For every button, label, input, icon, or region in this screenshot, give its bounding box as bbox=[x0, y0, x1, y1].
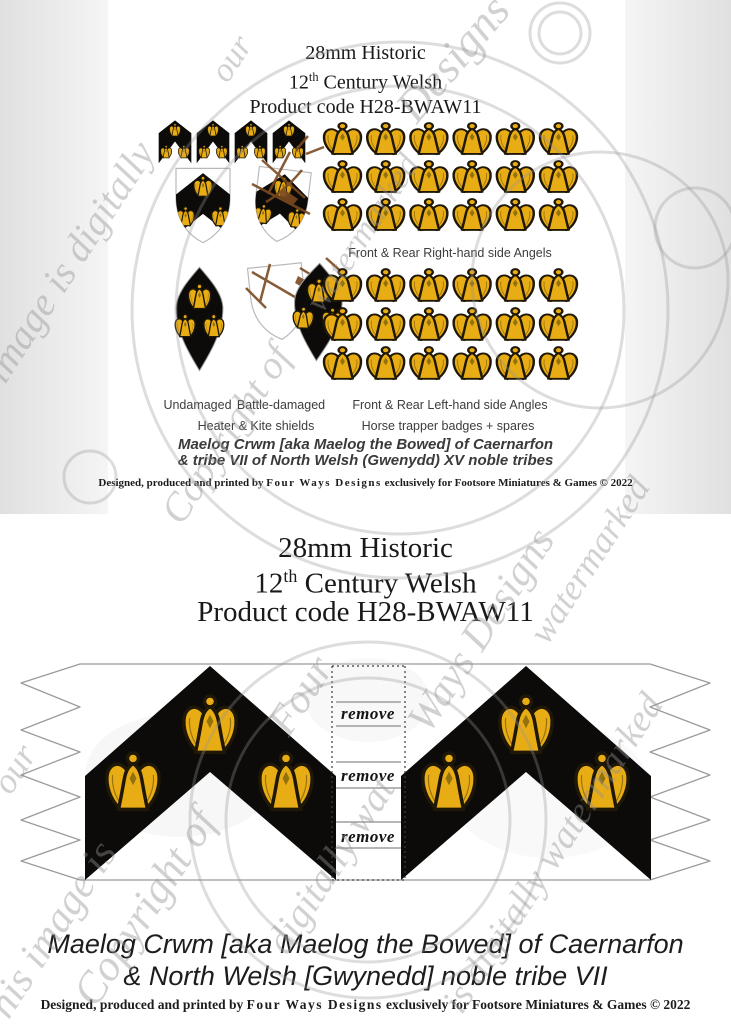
title-line-2: 12th Century Welsh bbox=[0, 65, 731, 95]
angel-icon bbox=[540, 161, 577, 192]
angel-icon bbox=[454, 308, 491, 340]
angel-icon bbox=[367, 269, 404, 301]
angel-icon bbox=[410, 199, 447, 230]
angel-icon bbox=[324, 347, 361, 379]
product-image-page: { "colors": { "gold": "#E8AC15", "outlin… bbox=[0, 0, 731, 1024]
artwork-layer: remove remove remove bbox=[0, 0, 731, 1024]
top-sheet-caption: Maelog Crwm [aka Maelog the Bowed] of Ca… bbox=[0, 437, 731, 469]
angel-icon bbox=[367, 347, 404, 379]
remove-label: remove bbox=[341, 704, 395, 723]
angel-icon bbox=[324, 161, 361, 192]
angel-icon bbox=[454, 123, 491, 154]
chevron-badge-icon bbox=[197, 120, 230, 163]
top-sheet-copyright: Designed, produced and printed by Four W… bbox=[0, 477, 731, 489]
angel-icon bbox=[540, 347, 577, 379]
label-left-angels: Front & Rear Left-hand side Angles bbox=[338, 398, 562, 412]
angel-icon bbox=[410, 161, 447, 192]
angel-icon bbox=[324, 123, 361, 154]
kite-shield-battle-damaged-icon bbox=[246, 258, 344, 362]
angel-grid-left-side bbox=[324, 269, 577, 379]
angel-icon bbox=[454, 347, 491, 379]
banner-sheet-title: 28mm Historic 12th Century Welsh Product… bbox=[0, 534, 731, 626]
angel-icon bbox=[367, 123, 404, 154]
angel-icon bbox=[410, 347, 447, 379]
chevron-badge-row bbox=[159, 120, 306, 163]
remove-label: remove bbox=[341, 766, 395, 785]
banner: remove remove remove bbox=[21, 658, 710, 880]
angel-icon bbox=[367, 199, 404, 230]
caption-line-1: Maelog Crwm [aka Maelog the Bowed] of Ca… bbox=[0, 928, 731, 960]
label-right-angels: Front & Rear Right-hand side Angels bbox=[338, 246, 562, 260]
angel-icon bbox=[540, 123, 577, 154]
angel-icon bbox=[324, 199, 361, 230]
angel-grid-right-side bbox=[324, 123, 577, 230]
angel-icon bbox=[454, 269, 491, 301]
angel-icon bbox=[540, 199, 577, 230]
top-sheet-title: 28mm Historic 12th Century Welsh Product… bbox=[0, 41, 731, 119]
chevron-badge-icon bbox=[235, 120, 268, 163]
angel-icon bbox=[410, 308, 447, 340]
caption-line-2: & tribe VII of North Welsh (Gwenydd) XV … bbox=[0, 453, 731, 469]
remove-label: remove bbox=[341, 827, 395, 846]
angel-icon bbox=[454, 199, 491, 230]
title-line-3: Product code H28-BWAW11 bbox=[0, 598, 731, 626]
chevron-badge-icon bbox=[159, 120, 192, 163]
angel-icon bbox=[497, 347, 534, 379]
angel-icon bbox=[367, 161, 404, 192]
angel-icon bbox=[540, 269, 577, 301]
title-line-1: 28mm Historic bbox=[0, 534, 731, 562]
banner-sheet-caption: Maelog Crwm [aka Maelog the Bowed] of Ca… bbox=[0, 928, 731, 992]
caption-line-1: Maelog Crwm [aka Maelog the Bowed] of Ca… bbox=[0, 437, 731, 453]
title-line-2: 12th Century Welsh bbox=[0, 562, 731, 598]
angel-icon bbox=[497, 123, 534, 154]
label-undamaged: Undamaged bbox=[160, 398, 235, 412]
angel-icon bbox=[454, 161, 491, 192]
title-line-3: Product code H28-BWAW11 bbox=[0, 95, 731, 119]
angel-icon bbox=[410, 123, 447, 154]
angel-icon bbox=[497, 269, 534, 301]
heater-shield-undamaged-icon bbox=[174, 168, 232, 242]
label-shields: Heater & Kite shields bbox=[181, 419, 331, 433]
fabric-shade bbox=[306, 658, 430, 742]
angel-icon bbox=[410, 269, 447, 301]
chevron-badge-icon bbox=[273, 120, 306, 163]
angel-icon bbox=[540, 308, 577, 340]
banner-sheet-copyright: Designed, produced and printed by Four W… bbox=[0, 997, 731, 1013]
angel-icon bbox=[497, 161, 534, 192]
kite-shield-undamaged-icon bbox=[175, 267, 224, 370]
angel-icon bbox=[497, 199, 534, 230]
label-badges: Horse trapper badges + spares bbox=[348, 419, 548, 433]
angel-icon bbox=[324, 269, 361, 301]
caption-line-2: & North Welsh [Gwynedd] noble tribe VII bbox=[0, 960, 731, 992]
label-battle-damaged: Battle-damaged bbox=[236, 398, 326, 412]
title-line-1: 28mm Historic bbox=[0, 41, 731, 65]
angel-icon bbox=[497, 308, 534, 340]
angel-icon bbox=[367, 308, 404, 340]
